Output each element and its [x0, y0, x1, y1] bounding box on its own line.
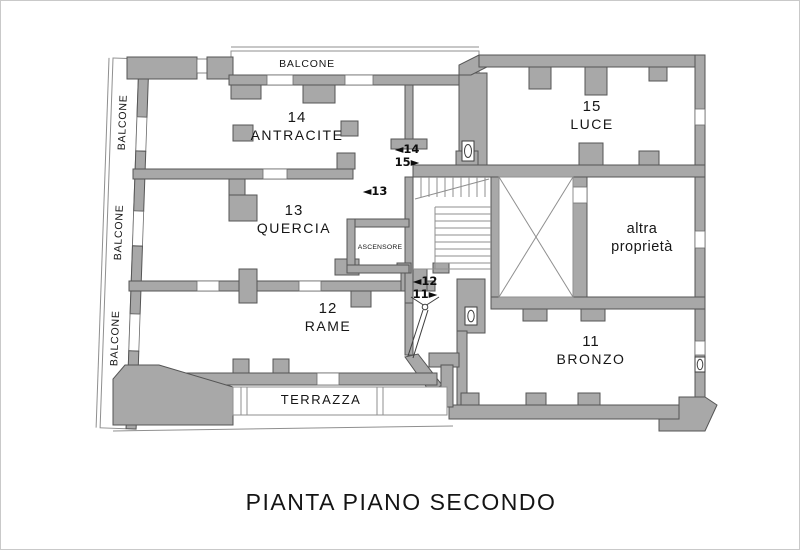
plan-title: PIANTA PIANO SECONDO — [246, 489, 557, 515]
balcony-label-left-3: BALCONE — [108, 310, 122, 366]
elevator-label: ASCENSORE — [358, 244, 403, 251]
light-well — [499, 177, 573, 297]
staircase — [413, 177, 491, 269]
floor-plan-drawing: BALCONE BALCONE BALCONE BALCONE — [1, 1, 799, 549]
apartment-15-number: 15 — [583, 98, 602, 115]
apartment-11-number: 11 — [582, 333, 600, 350]
apartment-13-number: 13 — [285, 202, 304, 219]
marker-apartment-14: ◄14 — [395, 142, 420, 156]
apartment-14-number: 14 — [288, 109, 307, 126]
apartment-12-name: RAME — [305, 318, 351, 334]
apartment-11-name: BRONZO — [557, 351, 626, 367]
marker-apartment-13: ◄13 — [363, 184, 388, 198]
floor-plan-page: BALCONE BALCONE BALCONE BALCONE — [0, 0, 800, 550]
terrace-label: TERRAZZA — [281, 392, 362, 407]
marker-apartment-11: 11► — [413, 287, 438, 301]
marker-apartment-15: 15► — [395, 155, 420, 169]
top-balcony: BALCONE — [231, 47, 479, 75]
apartment-14-name: ANTRACITE — [251, 127, 344, 143]
apartment-15-name: LUCE — [570, 116, 613, 132]
elevator: ASCENSORE — [347, 219, 409, 273]
balcony-label-left-2: BALCONE — [112, 204, 126, 260]
balcony-label-left-1: BALCONE — [116, 94, 130, 150]
other-property-line2: proprietà — [611, 239, 673, 255]
other-property-line1: altra — [627, 221, 658, 237]
marker-apartment-12: ◄12 — [413, 274, 438, 288]
apartment-13-name: QUERCIA — [257, 220, 331, 236]
apartment-12-number: 12 — [319, 300, 338, 317]
balcony-label-top: BALCONE — [279, 58, 335, 70]
